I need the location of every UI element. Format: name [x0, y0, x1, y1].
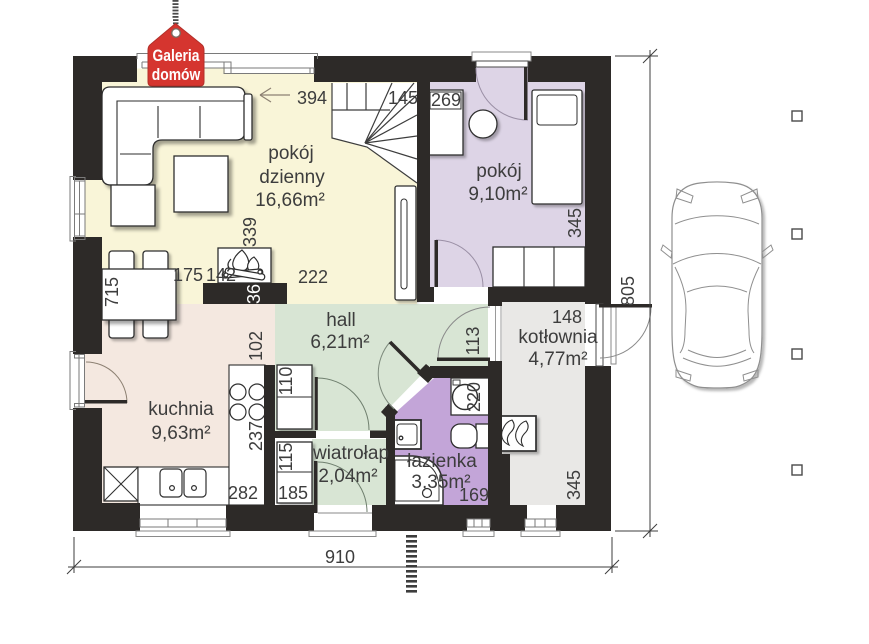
svg-text:110: 110 — [276, 367, 296, 396]
svg-text:115: 115 — [276, 443, 296, 472]
svg-text:910: 910 — [325, 547, 355, 567]
svg-text:102: 102 — [246, 331, 266, 361]
svg-text:pokój: pokój — [476, 161, 521, 182]
svg-text:dzienny: dzienny — [259, 167, 325, 188]
svg-text:113: 113 — [463, 327, 483, 356]
svg-text:805: 805 — [618, 276, 638, 306]
svg-text:142: 142 — [206, 265, 236, 285]
svg-text:222: 222 — [298, 267, 328, 287]
svg-text:kotłownia: kotłownia — [518, 327, 598, 348]
svg-text:269: 269 — [431, 90, 461, 110]
svg-text:domów: domów — [152, 66, 201, 84]
svg-text:145: 145 — [388, 88, 418, 108]
svg-text:715: 715 — [102, 277, 122, 307]
svg-text:kuchnia: kuchnia — [148, 399, 214, 420]
svg-text:6,21m²: 6,21m² — [310, 332, 369, 353]
svg-text:282: 282 — [228, 483, 258, 503]
svg-text:2,04m²: 2,04m² — [318, 466, 377, 487]
svg-text:łazienka: łazienka — [407, 451, 477, 472]
svg-text:9,63m²: 9,63m² — [151, 423, 210, 444]
svg-text:220: 220 — [464, 382, 484, 412]
svg-text:16,66m²: 16,66m² — [255, 190, 325, 211]
svg-text:4,77m²: 4,77m² — [528, 349, 587, 370]
svg-text:hall: hall — [326, 310, 356, 331]
svg-text:wiatrołap: wiatrołap — [312, 443, 389, 464]
svg-text:185: 185 — [278, 483, 308, 503]
svg-text:169: 169 — [459, 485, 489, 505]
svg-text:Galeria: Galeria — [153, 47, 200, 65]
svg-text:9,10m²: 9,10m² — [468, 184, 527, 205]
svg-text:148: 148 — [552, 307, 582, 327]
svg-text:339: 339 — [240, 217, 260, 247]
svg-text:36: 36 — [244, 284, 264, 304]
svg-text:345: 345 — [564, 470, 584, 500]
svg-text:pokój: pokój — [268, 143, 313, 164]
svg-text:394: 394 — [297, 88, 327, 108]
svg-text:175: 175 — [173, 265, 203, 285]
svg-text:345: 345 — [565, 208, 585, 238]
svg-text:237: 237 — [246, 421, 266, 451]
